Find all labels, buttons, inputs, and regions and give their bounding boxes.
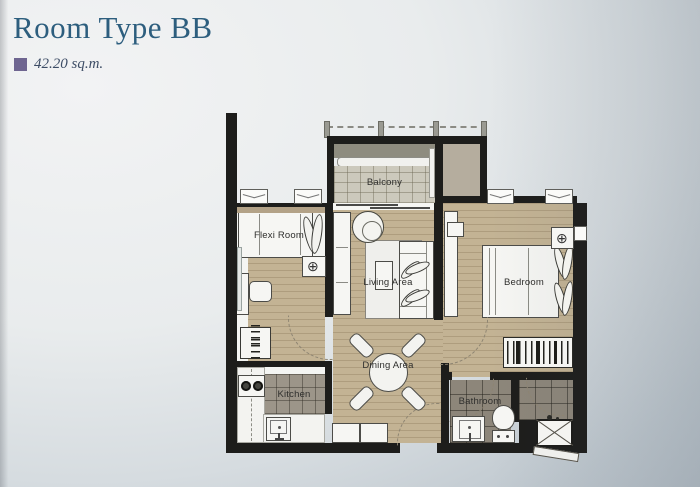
wall-kitchen-right (325, 361, 332, 414)
dining-table (369, 353, 408, 392)
room-label-balcony: Balcony (334, 177, 435, 188)
fridge (240, 327, 271, 359)
sliding-door-balcony (333, 203, 434, 210)
wall-flexi-top-ledge (237, 207, 327, 213)
window-flexi-2 (294, 189, 322, 204)
toilet (492, 405, 515, 443)
balcony-planter (334, 144, 435, 158)
room-label-dining: Dining Area (348, 360, 428, 371)
shower-head-icon (547, 415, 552, 420)
tv-box (447, 222, 464, 237)
lamp-icon: ⊕ (556, 231, 568, 245)
kitchen-sink (266, 417, 291, 441)
shower-valve-icon (556, 417, 559, 420)
ac-ledge-floor (443, 144, 480, 196)
bathroom-sink (452, 416, 485, 442)
room-label-bedroom: Bedroom (486, 277, 562, 288)
living-wall-cabinet (333, 212, 351, 315)
window-bedroom-1 (487, 189, 514, 204)
room-label-bathroom: Bathroom (444, 396, 516, 407)
wall-balcony-ledge-divider (435, 144, 443, 203)
desk-chair (249, 281, 272, 302)
room-label-kitchen: Kitchen (261, 389, 327, 400)
floor-plan: ⊕ (0, 0, 700, 487)
roof-overhang-dashed-line (327, 126, 487, 128)
window-right-wall (574, 226, 587, 241)
shoe-cabinet (360, 423, 388, 443)
wall-balcony-left (327, 136, 334, 206)
room-label-flexi: Flexi Room (237, 230, 321, 241)
wall-flexi-living (325, 203, 333, 317)
window-flexi-1 (240, 189, 268, 204)
room-label-living: Living Area (350, 277, 426, 288)
shoe-cabinet (332, 423, 360, 443)
plant-icon (555, 245, 575, 281)
wall-shower-stub (519, 420, 537, 447)
wall-living-bedroom (434, 203, 443, 320)
shower-tray (536, 419, 573, 447)
lamp-icon: ⊕ (307, 259, 319, 273)
wall-balcony-top (327, 136, 487, 144)
brochure-page: Room Type BB 42.20 sq.m. (0, 0, 700, 487)
wall-ledge-right (480, 136, 487, 203)
round-lounge-chair (352, 211, 384, 243)
wardrobe (503, 337, 573, 368)
wall-bottom-left (226, 443, 400, 453)
flexi-side-window (237, 247, 242, 311)
wall-left-outer (226, 113, 237, 453)
burner-icon (241, 381, 251, 391)
window-bedroom-2 (545, 189, 573, 204)
